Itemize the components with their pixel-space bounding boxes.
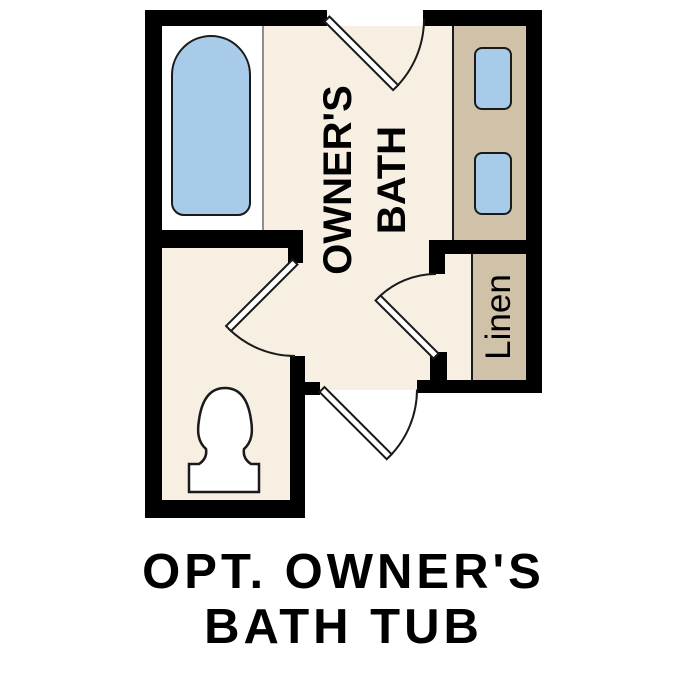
linen-closet-label-text: Linen — [479, 274, 519, 360]
owners-bath-label-line1: OWNER'S — [311, 85, 365, 275]
linen-closet-label: Linen — [484, 262, 514, 372]
entry-door-leaf — [320, 387, 392, 459]
plan-caption-line2: BATH TUB — [0, 600, 687, 655]
owners-bath-label-line2: BATH — [365, 126, 419, 234]
owners-bath-label: OWNER'S BATH — [310, 50, 420, 310]
wc-door-leaf — [226, 260, 297, 331]
floor-plan: OWNER'S BATH Linen OPT. OWNER'S BATH TUB — [0, 0, 687, 687]
wc-door-arc — [229, 329, 296, 357]
plan-caption: OPT. OWNER'S BATH TUB — [0, 545, 687, 655]
toilet — [189, 388, 259, 492]
plan-caption-line1: OPT. OWNER'S — [0, 545, 687, 600]
entry-door-arc — [389, 390, 417, 457]
